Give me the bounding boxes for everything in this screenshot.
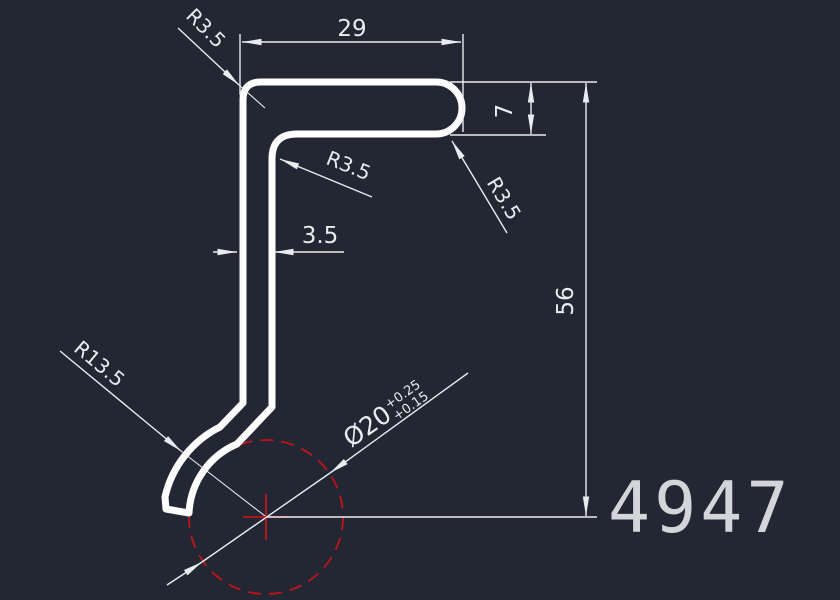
dim-top-width-value: 29 [337, 16, 366, 42]
dim-wall-thickness-value: 3.5 [302, 223, 339, 249]
cad-canvas[interactable]: 29 7 56 3.5 R3.5 R3.5 [0, 0, 840, 600]
cad-viewport: 29 7 56 3.5 R3.5 R3.5 [0, 0, 840, 600]
dim-overall-height-value: 56 [553, 286, 579, 315]
part-number: 4947 [608, 467, 793, 549]
dim-flange-height-value: 7 [492, 104, 518, 119]
